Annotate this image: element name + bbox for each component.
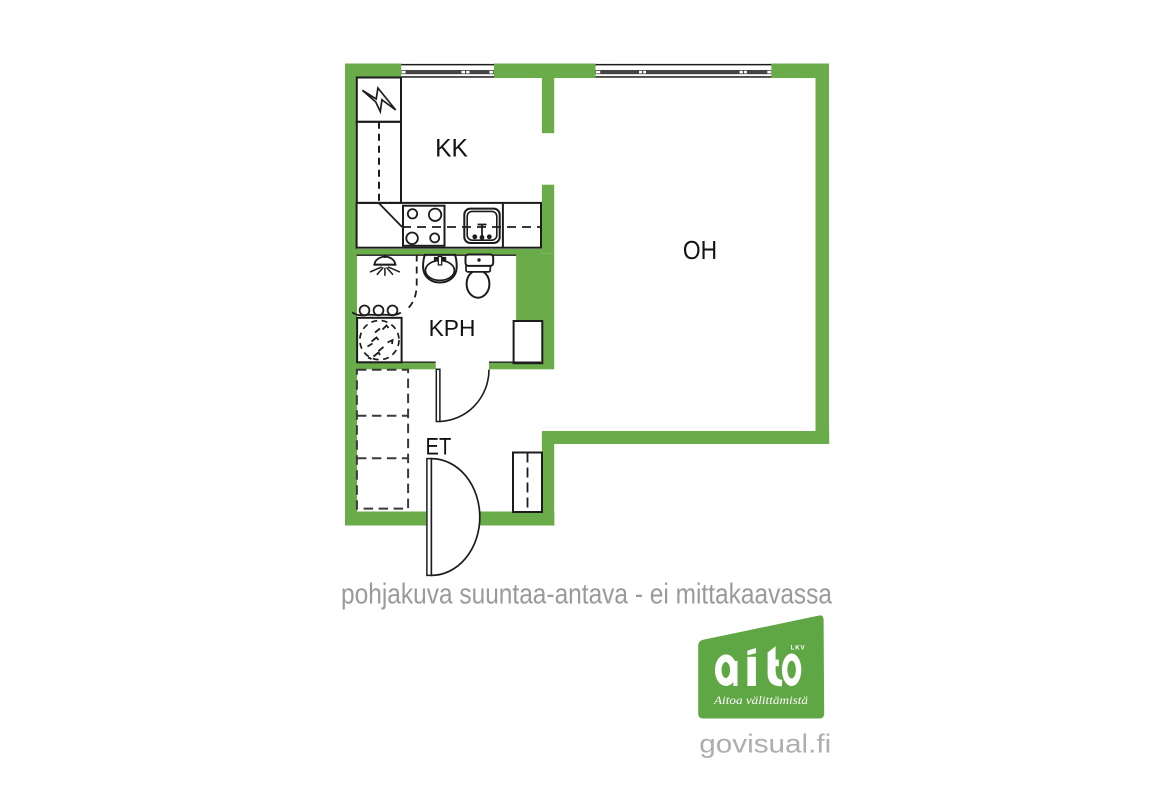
svg-text:KK: KK <box>435 135 468 163</box>
svg-text:pohjakuva suuntaa-antava - ei: pohjakuva suuntaa-antava - ei mittakaava… <box>341 578 832 610</box>
svg-text:KPH: KPH <box>429 315 476 341</box>
svg-text:Aitoa välittämistä: Aitoa välittämistä <box>713 695 808 707</box>
svg-text:OH: OH <box>683 235 717 265</box>
svg-text:LKV: LKV <box>791 646 806 652</box>
svg-text:ET: ET <box>426 433 452 460</box>
svg-text:govisual.fi: govisual.fi <box>699 728 831 758</box>
